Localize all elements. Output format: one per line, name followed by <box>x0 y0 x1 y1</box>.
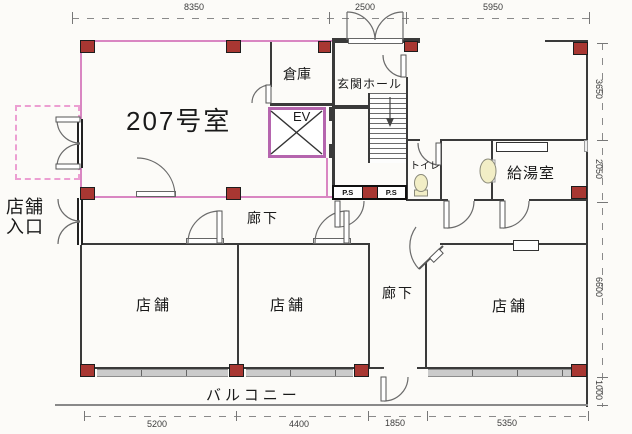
sink-icon <box>480 159 496 183</box>
door-arc <box>58 222 80 244</box>
door-leaf <box>266 85 271 103</box>
structural-column <box>80 187 95 200</box>
door-arc <box>347 12 375 40</box>
door-arc <box>58 199 80 221</box>
pipe-space-label: P.S <box>378 187 406 198</box>
shop1-label: 店舗 <box>136 294 172 315</box>
door-leaf <box>500 201 505 228</box>
door-arc <box>447 201 474 228</box>
door-arc <box>410 227 419 269</box>
structural-column <box>404 41 418 52</box>
dim-top-5950: 5950 <box>483 2 503 12</box>
door-arc <box>57 120 80 143</box>
door-arc <box>375 12 403 40</box>
structural-column <box>80 364 95 377</box>
dim-bottom-5350: 5350 <box>497 418 517 428</box>
shop2-label: 店舗 <box>270 294 306 315</box>
dim-top-2500: 2500 <box>355 2 375 12</box>
structural-column <box>573 42 588 55</box>
kitchenette-label: 給湯室 <box>507 162 555 183</box>
shop-entrance-label: 店舗 入口 <box>6 197 44 237</box>
toilet-label: トイレ <box>410 157 440 172</box>
toilet-icon <box>415 175 428 197</box>
dim-bottom-4400: 4400 <box>289 419 309 429</box>
floor-plan: 8350 2500 5950 5200 4400 1850 5350 3650 … <box>0 0 632 434</box>
door-leaf <box>56 117 80 122</box>
structural-column <box>571 186 587 199</box>
door-arc <box>188 211 220 243</box>
dim-bottom-1850: 1850 <box>385 418 405 428</box>
door-leaf <box>401 55 406 77</box>
stairs-direction-arrow <box>386 97 394 127</box>
pipe-space-column <box>362 187 378 198</box>
door-leaf <box>344 211 349 243</box>
corridor-upper-label: 廊下 <box>247 208 279 228</box>
storage-label: 倉庫 <box>283 64 311 84</box>
door-arc <box>137 158 175 196</box>
shop-entrance-line1: 店舗 <box>6 197 44 217</box>
dim-right-6600: 6600 <box>594 277 604 297</box>
corridor-lower-label: 廊下 <box>382 283 414 303</box>
structural-column <box>354 364 369 377</box>
door-arc <box>338 201 364 227</box>
door-leaf <box>381 377 386 401</box>
door-arc <box>503 201 529 228</box>
entrance-hall-label: 玄関ホール <box>337 75 402 92</box>
elevator-label: EV <box>293 109 310 124</box>
door-arc <box>384 377 408 401</box>
dim-bottom-5200: 5200 <box>147 419 167 429</box>
door-leaf <box>217 211 222 243</box>
dim-right-3650: 3650 <box>594 79 604 99</box>
structural-column <box>226 187 241 200</box>
balcony-label: バルコニー <box>206 384 301 405</box>
dim-right-2050: 2050 <box>594 159 604 179</box>
dim-right-1000: 1000 <box>594 380 604 400</box>
door-leaf <box>56 164 80 169</box>
door-leaf <box>335 201 340 227</box>
shop3-label: 店舗 <box>492 295 528 316</box>
dim-top-8350: 8350 <box>184 2 204 12</box>
pipe-space-strip: P.S P.S <box>332 185 407 200</box>
room-207-label: 207号室 <box>126 101 231 138</box>
pipe-space-label: P.S <box>334 187 362 198</box>
door-handle <box>430 249 444 262</box>
door-leaf <box>444 201 449 228</box>
structural-column <box>226 40 241 53</box>
structural-column <box>318 41 331 53</box>
structural-column <box>80 40 95 53</box>
structural-column <box>571 364 587 377</box>
structural-column <box>229 364 244 377</box>
shop-entrance-line2: 入口 <box>6 217 44 237</box>
